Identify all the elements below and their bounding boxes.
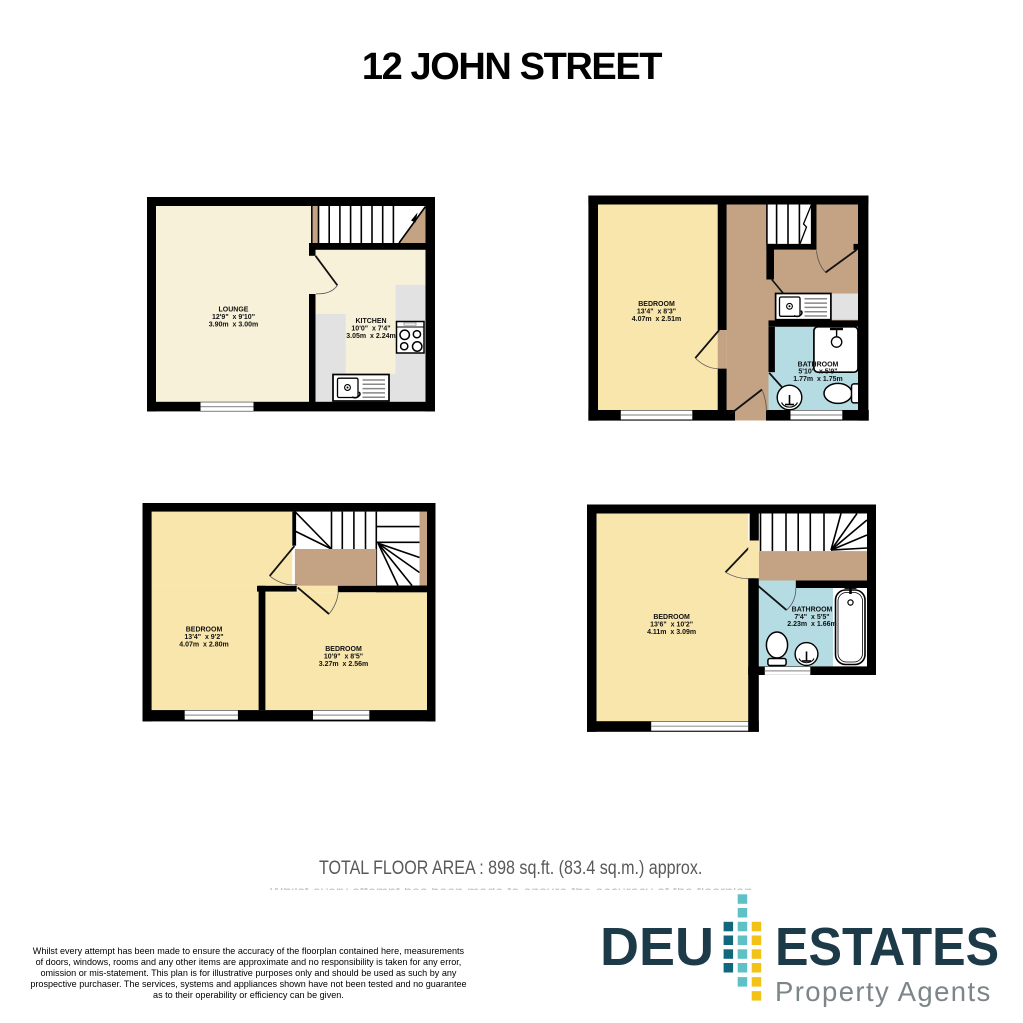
svg-text:BATHROOM: BATHROOM [798, 361, 839, 368]
svg-text:4.11m x 3.09m: 4.11m x 3.09m [647, 629, 696, 636]
svg-text:BEDROOM: BEDROOM [653, 614, 690, 621]
svg-text:BATHROOM: BATHROOM [792, 607, 833, 614]
svg-text:3.90m x 3.00m: 3.90m x 3.00m [209, 321, 258, 328]
svg-text:BEDROOM: BEDROOM [325, 646, 362, 653]
svg-text:2.23m x 1.66m: 2.23m x 1.66m [787, 621, 836, 628]
svg-text:KITCHEN: KITCHEN [355, 318, 386, 325]
svg-text:13'4" x 9'2": 13'4" x 9'2" [184, 634, 223, 641]
svg-text:7'4" x 5'5": 7'4" x 5'5" [794, 614, 829, 621]
svg-text:13'6" x 10'2": 13'6" x 10'2" [650, 622, 693, 629]
svg-text:1.77m x 1.75m: 1.77m x 1.75m [793, 376, 842, 383]
svg-text:3.27m x 2.56m: 3.27m x 2.56m [319, 661, 368, 668]
svg-text:10'0" x 7'4": 10'0" x 7'4" [351, 325, 390, 332]
svg-text:13'4" x 8'3": 13'4" x 8'3" [637, 309, 676, 316]
svg-text:3.05m x 2.24m: 3.05m x 2.24m [346, 333, 395, 340]
svg-text:4.07m x 2.51m: 4.07m x 2.51m [632, 316, 681, 323]
svg-text:BEDROOM: BEDROOM [638, 301, 675, 308]
svg-text:5'10" x 5'9": 5'10" x 5'9" [798, 369, 837, 376]
svg-text:12'9" x 9'10": 12'9" x 9'10" [212, 314, 255, 321]
svg-text:10'9" x 8'5": 10'9" x 8'5" [324, 654, 363, 661]
svg-text:LOUNGE: LOUNGE [219, 306, 249, 313]
svg-text:4.07m x 2.80m: 4.07m x 2.80m [179, 642, 228, 649]
svg-text:BEDROOM: BEDROOM [186, 627, 223, 634]
